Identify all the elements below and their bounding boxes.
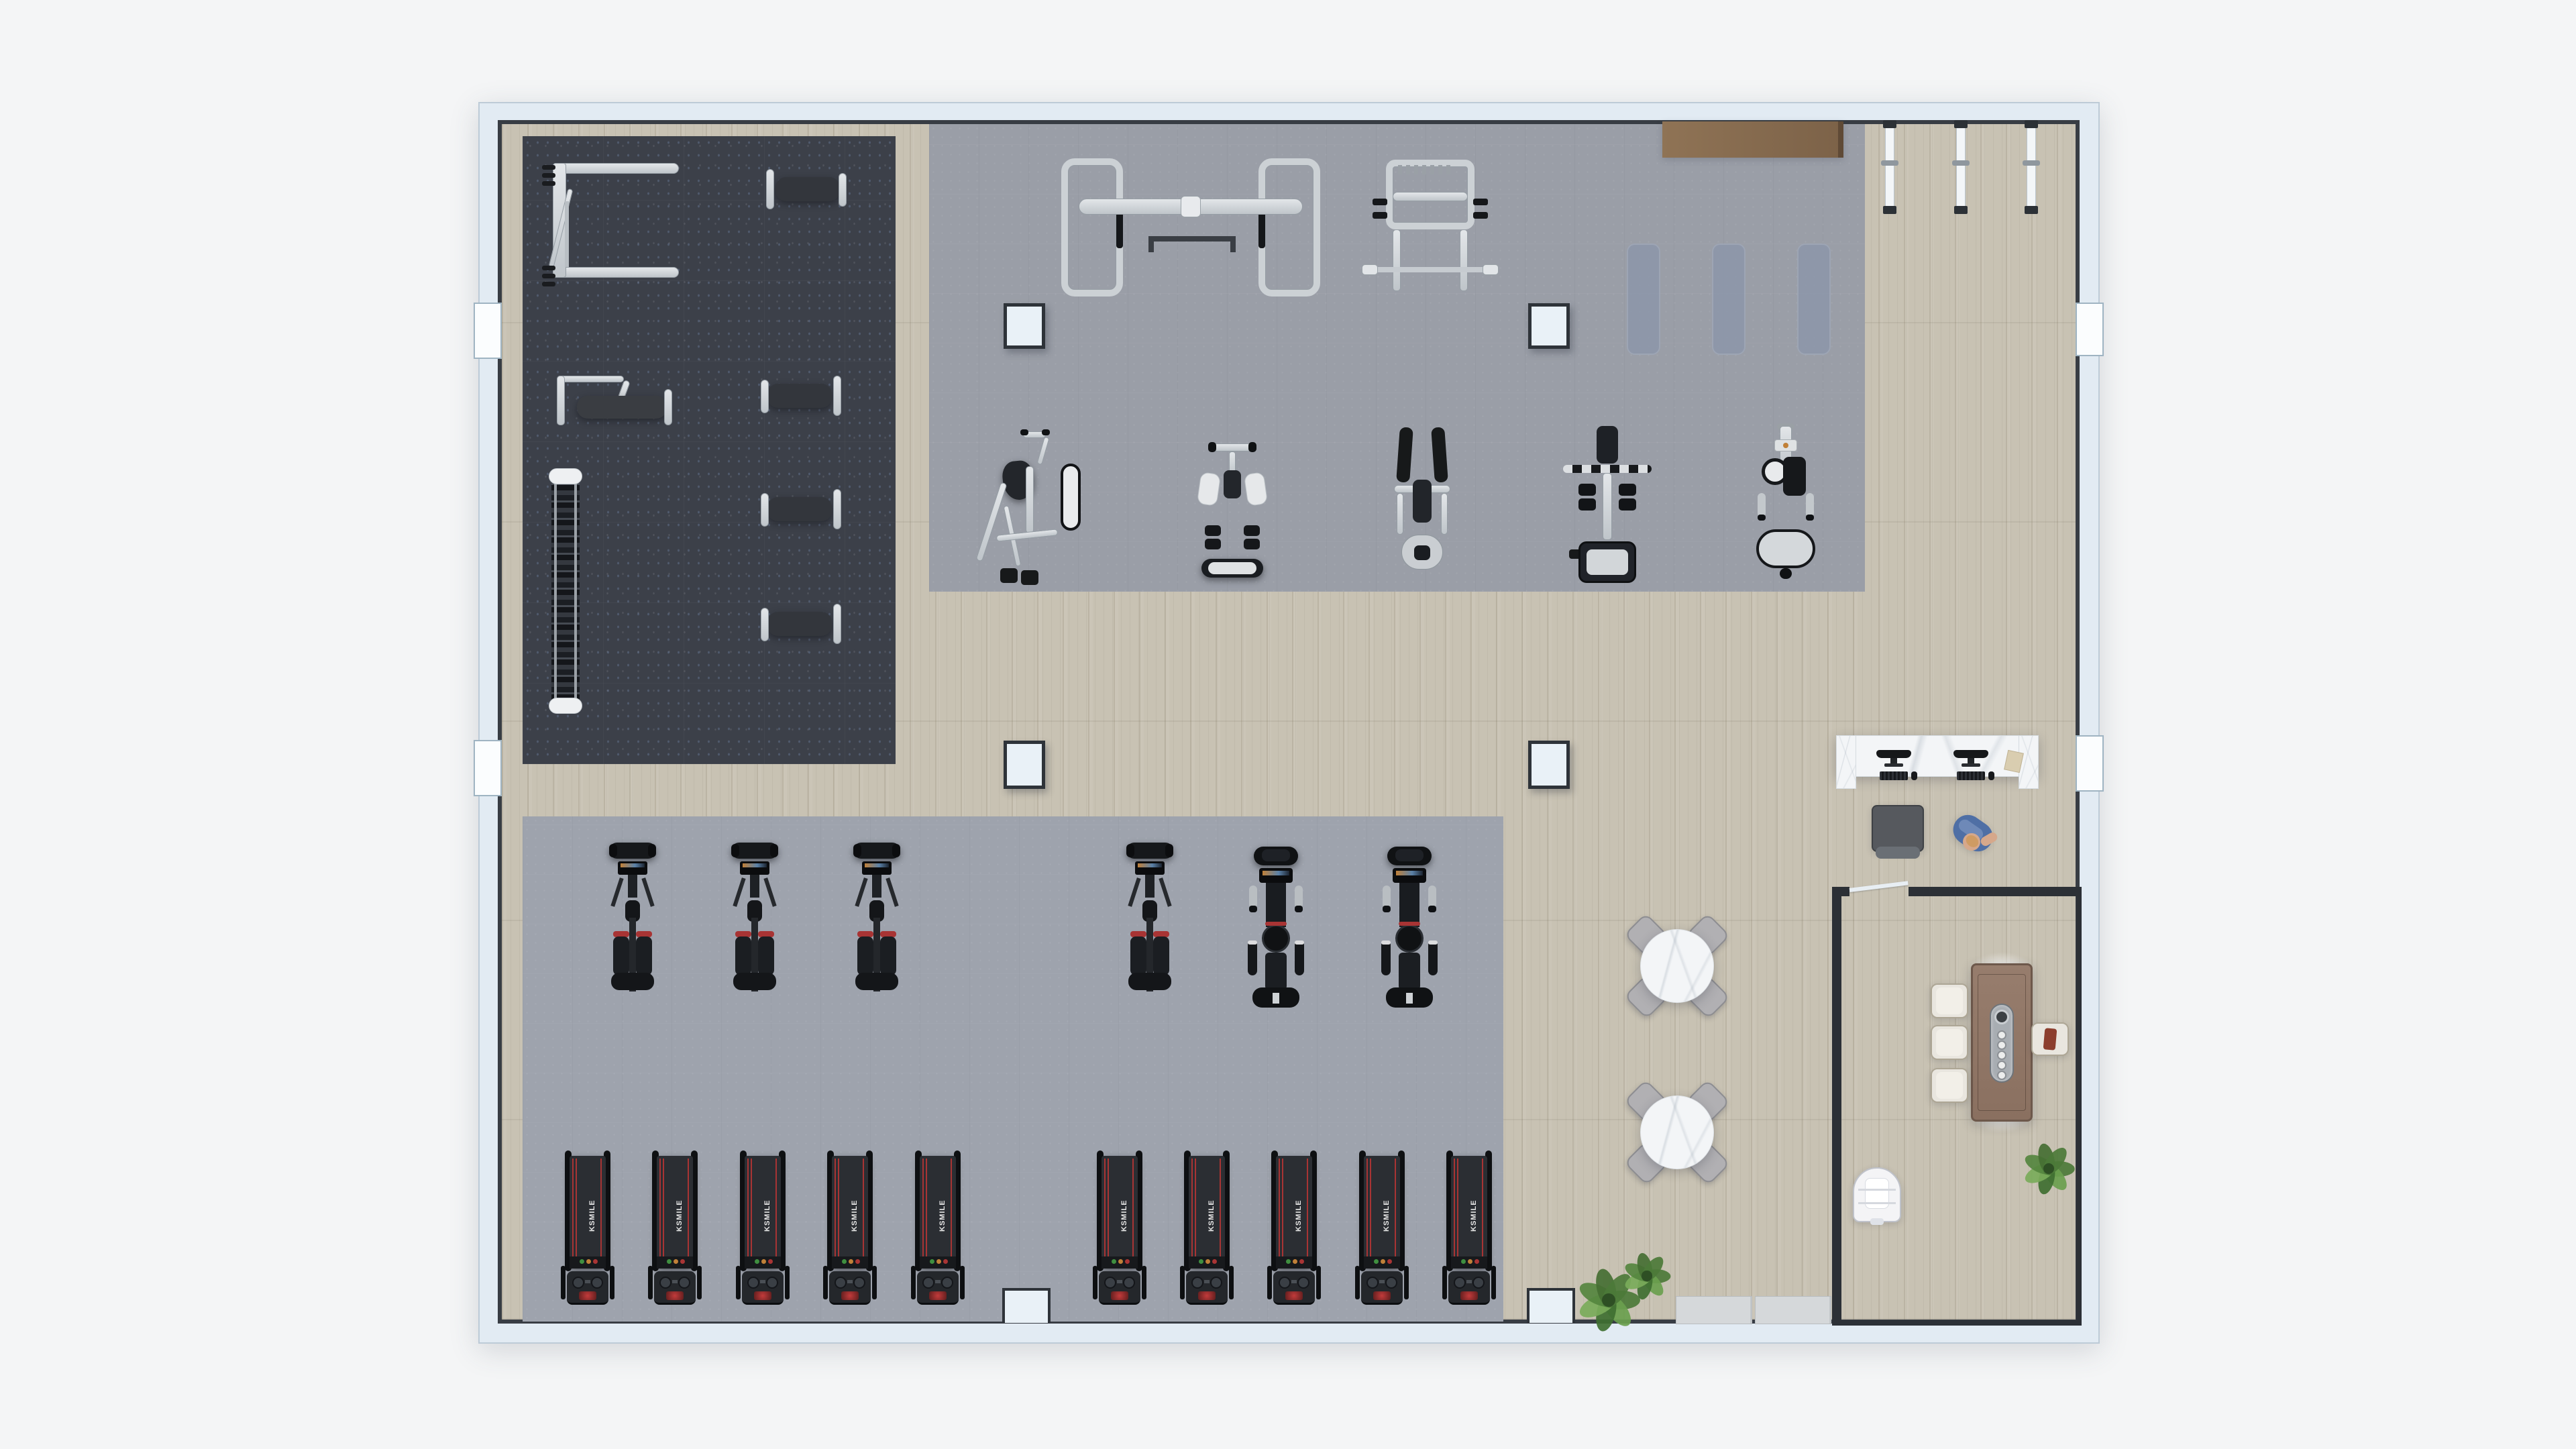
mouse [1988,771,1994,780]
bike-pedal [758,936,774,975]
bench-pad [775,177,840,201]
machine-handle [1758,493,1766,517]
bench-foot [761,493,769,527]
bike-handle-end [1126,844,1134,857]
bike-headrest-pad [1395,849,1424,861]
treadmill: KSMILE [738,1150,788,1309]
machine-roller [1244,525,1260,536]
bike-headrest-pad [1262,849,1290,861]
plant [2018,1138,2080,1199]
bike-pedal [636,936,652,975]
treadmill-speaker [853,1277,865,1289]
wall-bars-clip [1881,160,1898,166]
weight-bench-frame [554,373,676,427]
machine-base-inner [1208,562,1256,574]
strength-machine-functional-trainer [1739,426,1833,587]
storage-cabinet [1755,1296,1831,1324]
bike-pedal [613,936,629,975]
treadmill-brand-label: KSMILE [851,1185,864,1246]
treadmill-stripe [1108,1159,1109,1265]
bike-strut [733,877,745,907]
dumbbell-rack-rail [574,479,577,703]
plant [1619,1248,1675,1304]
cafe-table [1640,929,1714,1003]
bike-wheel [1395,924,1424,953]
cable-crossover [1060,158,1322,297]
treadmill-speaker [1123,1277,1135,1289]
treadmill-stripe [926,1159,927,1265]
treadmill-foot [610,1266,614,1299]
treadmill-dot [674,1259,678,1264]
spin-bike [1126,843,1174,991]
treadmill-display [579,1291,596,1300]
flat-bench [766,169,849,213]
treadmill-speaker [1385,1277,1397,1289]
column [1528,303,1570,349]
machine-base-center [1414,545,1430,560]
treadmill-vent [1466,1280,1472,1283]
cafe-table [1640,1095,1714,1169]
treadmill-foot [960,1266,965,1299]
treadmill-dot [1381,1259,1385,1264]
treadmill-foot [1267,1266,1272,1299]
flat-bench [758,604,841,648]
barbell-peg [1373,212,1387,219]
treadmill-stripe [838,1159,839,1265]
barbell-peg [542,165,555,170]
bike-arm-tip [1295,906,1303,912]
bike-rear-foot [733,973,776,990]
plant-center [1602,1293,1615,1307]
column [1528,741,1570,789]
treadmill-dot [1205,1259,1210,1264]
machine-wing [1197,472,1221,506]
storage-cabinet [1676,1296,1752,1324]
bike-strut [1159,877,1171,907]
treadmill-dot [761,1259,766,1264]
reception-desk-return [1836,735,1856,789]
treadmill-speaker [835,1277,847,1289]
column [1004,303,1045,349]
recumbent-bike [1248,847,1304,1010]
smith-vents [1398,165,1452,174]
office-wall [1909,887,2082,896]
office-wall [1832,887,1841,1326]
treadmill-dot [849,1259,853,1264]
monitor [1876,750,1911,758]
machine-arm-pad [1431,427,1448,482]
machine-pad [1413,480,1432,523]
treadmill-speaker [766,1277,778,1289]
smith-post [1393,229,1401,291]
strength-machine-elliptical [984,426,1078,587]
crossover-right-frame [1258,158,1320,297]
machine-column [1603,473,1612,540]
treadmill-vent [1117,1280,1122,1283]
office-wall [2076,887,2082,1326]
tea-cup [1997,1040,2006,1050]
bike-pedal [1153,936,1169,975]
frame-post [557,376,565,425]
treadmill-brand-label: KSMILE [1207,1185,1221,1246]
bench-pad [767,612,832,636]
stroller-seat [1865,1178,1889,1209]
treadmill-vent [672,1280,678,1283]
frame-top-bar [557,376,624,382]
treadmill-stripe [1104,1159,1106,1265]
treadmill: KSMILE [650,1150,700,1309]
machine-frame [1026,466,1034,533]
treadmill-vent [585,1280,590,1283]
keyboard [1957,771,1985,780]
treadmill-speaker [747,1277,759,1289]
barbell-peg [1373,199,1387,205]
bike-wheel-red [1265,922,1287,926]
bike-rear-foot [1128,973,1171,990]
barbell-peg [542,181,555,186]
keyboard [1880,771,1908,780]
spin-bike [853,843,901,991]
bike-stabilizer [1381,941,1391,975]
bench-stem [833,376,841,416]
treadmill-dot [855,1259,860,1264]
treadmill-dot [586,1259,591,1264]
treadmill-speaker [1454,1277,1466,1289]
barbell-sleeve [1362,264,1378,275]
treadmill-speaker [1279,1277,1291,1289]
bike-arm [1295,885,1303,908]
dumbbell-rack [549,468,582,714]
bike-stabilizer [1428,941,1438,975]
window-opening [2076,303,2104,356]
treadmill-stripe [663,1159,664,1265]
treadmill-stripe [1370,1159,1371,1265]
wall-bars [1956,123,1966,210]
treadmill-speaker [1297,1277,1309,1289]
treadmill-stripe [1366,1159,1368,1265]
monitor [1953,750,1988,758]
bike-strut [763,877,776,907]
treadmill-brand-label: KSMILE [676,1185,689,1246]
machine-arm [1036,437,1049,466]
bench-foot [761,380,769,413]
wall-bars-cap [2025,206,2038,214]
recumbent-bike [1381,847,1438,1010]
wall-bars-cap [1954,120,1968,128]
treadmill-vent [935,1280,941,1283]
power-rack [549,156,680,298]
machine-pad [1597,426,1618,464]
treadmill-stripe [835,1159,836,1265]
guest-chair-seat [1936,1029,1963,1056]
yoga-mat [1797,244,1831,355]
wall-bars-cap [1954,206,1968,214]
bike-handle-end [892,844,900,857]
treadmill-foot [1404,1266,1409,1299]
treadmill-display [754,1291,771,1300]
tea-cup [1997,1030,2006,1040]
bike-console-screen [1263,871,1289,875]
treadmill-stripe [1282,1159,1283,1265]
bike-strut [885,877,898,907]
bike-lower [1265,953,1287,990]
dumbbell-rack-cap [549,698,582,714]
wall-bars-clip [2023,160,2040,166]
treadmill-dot [1468,1259,1472,1264]
bike-pedal [1130,936,1146,975]
bike-strut [1128,877,1140,907]
machine-handle [1212,443,1252,451]
treadmill-stripe [751,1159,752,1265]
machine-roller [1619,484,1636,496]
bike-arm-tip [1249,906,1257,912]
machine-arm-pad [1396,427,1413,482]
power-rack-bottom-bar [555,267,679,278]
bench-pad [767,384,832,408]
treadmill-speaker [678,1277,690,1289]
treadmill-speaker [1472,1277,1485,1289]
bike-console-screen [743,863,767,867]
machine-grip [1806,515,1814,521]
bike-strut [855,877,867,907]
bike-arm [1383,885,1391,908]
window-opening [2076,735,2104,792]
bike-arm [1249,885,1257,908]
treadmill-stripe [572,1159,574,1265]
treadmill-stripe [1195,1159,1196,1265]
treadmill: KSMILE [1269,1150,1319,1309]
bike-stabilizer-tip [1248,941,1257,945]
treadmill-foot [1355,1266,1360,1299]
treadmill-brand-label: KSMILE [588,1185,602,1246]
treadmill-speaker [1210,1277,1222,1289]
treadmill-display [1111,1291,1128,1300]
bench-foot [839,173,847,207]
bike-handle-end [609,844,617,857]
bike-console-screen [621,863,645,867]
treadmill-dot [1112,1259,1116,1264]
treadmill-speaker [1191,1277,1203,1289]
treadmill-display [1373,1291,1391,1300]
treadmill-speaker [1366,1277,1379,1289]
crossover-left-frame [1061,158,1123,297]
wall-bars-cap [1883,120,1896,128]
machine-roller [1578,498,1596,511]
treadmill-dot [1125,1259,1130,1264]
bike-stabilizer-tip [1428,941,1438,945]
treadmill-foot [1491,1266,1496,1299]
machine-shroud [1061,464,1081,531]
machine-handle [1806,493,1814,517]
bike-stabilizer-tip [1295,941,1304,945]
bike-stabilizer [1248,941,1257,975]
wall-shelf [1662,121,1843,158]
wall-bars-clip [1952,160,1970,166]
treadmill-vent [1204,1280,1210,1283]
machine-roller [1205,525,1221,536]
bike-handle-end [731,844,739,857]
tea-pot [1994,1010,2009,1024]
treadmill-dot [1387,1259,1392,1264]
treadmill-foot [561,1266,566,1299]
machine-pad [1224,470,1241,498]
treadmill-foot [823,1266,828,1299]
treadmill-stripe [1279,1159,1280,1265]
treadmill: KSMILE [1182,1150,1232,1309]
wall-shelf-edge [1838,121,1843,158]
bench-stem [833,604,841,644]
treadmill-dot [1474,1259,1479,1264]
treadmill-foot [736,1266,741,1299]
office-chair-back [1876,847,1920,859]
bike-rear-foot [611,973,654,990]
treadmill: KSMILE [1095,1150,1144,1309]
treadmill-speaker [659,1277,672,1289]
treadmill-vent [1379,1280,1385,1283]
barbell-peg [542,173,555,178]
treadmill-speaker [1104,1277,1116,1289]
treadmill-speaker [941,1277,953,1289]
treadmill-dot [842,1259,847,1264]
machine-grip [1758,515,1766,521]
machine-console-dot [1783,443,1788,448]
treadmill-stripe [1191,1159,1193,1265]
crossover-center-sleeve [1181,196,1201,217]
crossover-bench-leg [1230,241,1236,252]
treadmill-display [841,1291,859,1300]
treadmill-dot [593,1259,598,1264]
machine-foot-pad [1000,568,1018,583]
bike-stem [628,875,637,898]
stroller-bar [1858,1202,1896,1204]
crossover-bench-leg [1148,241,1154,252]
barbell-peg [1473,199,1488,205]
treadmill-dot [667,1259,672,1264]
bike-stem [1145,875,1155,898]
bike-torso [1399,883,1419,927]
treadmill-dot [768,1259,773,1264]
bike-arm-tip [1383,906,1391,912]
bike-lower [1399,953,1420,990]
machine-wing [1244,472,1268,506]
treadmill-display [666,1291,684,1300]
spin-bike [608,843,657,991]
machine-striped-bar [1563,465,1652,473]
treadmill-dot [580,1259,584,1264]
column [1004,741,1045,789]
floor-plan: KSMILEKSMILEKSMILEKSMILEKSMILEKSMILEKSMI… [0,0,2576,1449]
treadmill-brand-label: KSMILE [1120,1185,1134,1246]
monitor-stand [1890,758,1897,763]
treadmill-brand-label: KSMILE [938,1185,952,1246]
bike-rear-silver [1406,993,1413,1004]
treadmill-stripe [659,1159,661,1265]
machine-grip [1208,442,1216,452]
bike-wheel [1262,924,1290,953]
treadmill-stripe [922,1159,924,1265]
treadmill-dot [1374,1259,1379,1264]
treadmill-foot [1142,1266,1146,1299]
monitor-stand [1968,758,1974,763]
bike-stabilizer [1295,941,1304,975]
stroller-handle [1870,1218,1884,1225]
treadmill-vent [1291,1280,1297,1283]
treadmill-stripe [1454,1159,1455,1265]
treadmill-dot [1118,1259,1123,1264]
tea-cup [1997,1071,2006,1080]
bike-arm-tip [1428,906,1436,912]
bike-handle-end [1165,844,1173,857]
bike-console-screen [1396,871,1423,875]
treadmill-foot [1093,1266,1097,1299]
dumbbell-rack-cap [549,468,582,484]
smith-machine [1366,160,1499,305]
bike-console-screen [1138,863,1162,867]
machine-grip [1042,429,1050,435]
treadmill-foot [648,1266,653,1299]
bench-stem [766,169,774,209]
window-opening [474,740,502,796]
treadmill-foot [911,1266,916,1299]
spin-bike [731,843,779,991]
treadmill-vent [760,1280,765,1283]
treadmill-speaker [922,1277,934,1289]
treadmill-brand-label: KSMILE [1295,1185,1308,1246]
treadmill: KSMILE [563,1150,612,1309]
treadmill-dot [1461,1259,1466,1264]
treadmill-dot [1299,1259,1304,1264]
executive-chair-cushion [2043,1028,2057,1050]
crossover-bench [1148,236,1236,241]
guest-chair-seat [1936,1072,1963,1099]
flat-bench [758,489,841,533]
treadmill-dot [755,1259,759,1264]
treadmill-foot [697,1266,702,1299]
treadmill-display [929,1291,947,1300]
machine-base-inner [1587,549,1628,575]
monitor-base [1884,763,1903,767]
wall-bars-cap [1883,206,1896,214]
bike-rear-foot [855,973,898,990]
bike-handle-end [770,844,778,857]
wall-bars [2027,123,2036,210]
bike-strut [641,877,654,907]
machine-foot-pad [1021,570,1038,585]
treadmill-dot [930,1259,934,1264]
dumbbell-rack-rail [554,479,557,703]
wall-column [1527,1288,1575,1323]
bike-stem [750,875,759,898]
treadmill-foot [1180,1266,1185,1299]
machine-post [1397,493,1403,535]
treadmill-speaker [572,1277,584,1289]
treadmill-stripe [747,1159,749,1265]
plant-center [1642,1271,1652,1281]
treadmill-dot [1199,1259,1203,1264]
treadmill: KSMILE [825,1150,875,1309]
bike-arm [1428,885,1436,908]
barbell-peg [542,266,555,270]
barbell-peg [542,282,555,286]
mouse [1911,771,1917,780]
treadmill-display [1285,1291,1303,1300]
machine-grip [1248,442,1256,452]
treadmill: KSMILE [913,1150,963,1309]
smith-mid-bar [1393,192,1468,201]
treadmill-dot [1212,1259,1217,1264]
treadmill-foot [872,1266,877,1299]
yoga-mat [1712,244,1746,355]
